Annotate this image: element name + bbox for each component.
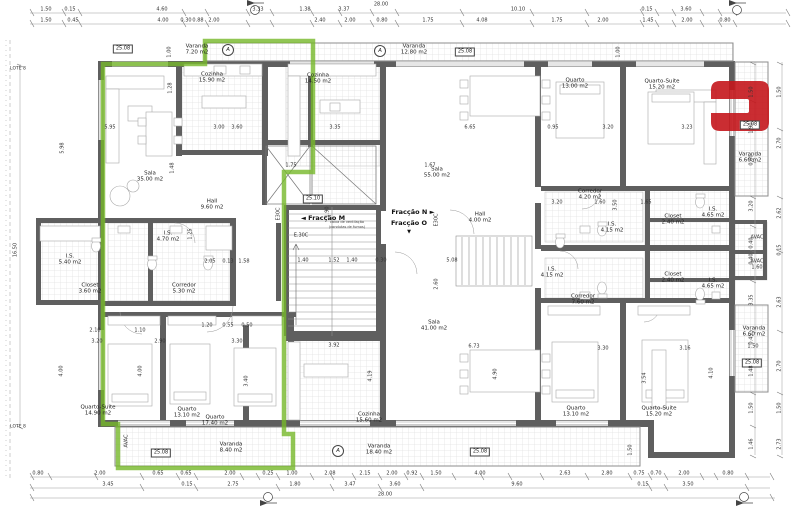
room-label: Quarto-Suite15.20 m2 <box>644 79 679 92</box>
lote-label: LOTE 8 <box>10 425 26 430</box>
dim-label: 0.15 <box>64 8 75 13</box>
dim-label: 1.80 <box>289 483 300 488</box>
dim-label: 3.23 <box>681 126 692 131</box>
room-label: Quarto-Suite15.20 m2 <box>641 406 676 419</box>
room-label: Sala35.00 m2 <box>137 171 163 184</box>
dim-label: 4.00 <box>157 19 168 24</box>
dim-label: 1.50 <box>778 86 783 97</box>
dim-label: 0.30 <box>180 19 191 24</box>
vent-note: (condutas de fumos) <box>329 225 365 229</box>
dim-label: 2.08 <box>324 472 335 477</box>
dim-label: 0.15 <box>181 483 192 488</box>
floor-plan-drawing <box>0 0 801 506</box>
dim-label: 1.50 <box>430 472 441 477</box>
dim-label: 2.40 <box>314 19 325 24</box>
dim-label: 0.95 <box>547 126 558 131</box>
avac-value: 1.60 <box>751 266 762 271</box>
dim-label: 1.58 <box>238 260 249 265</box>
room-label: Cozinha15.90 m2 <box>199 72 225 85</box>
dim-label: 3.40 <box>245 375 250 386</box>
dim-label: 2.63 <box>778 296 783 307</box>
dim-label: 2.73 <box>778 438 783 449</box>
room-label: Varanda7.20 m2 <box>186 44 209 57</box>
dim-label: 0.80 <box>722 472 733 477</box>
section-letter-a: A <box>222 44 234 56</box>
dim-label: 4.00 <box>474 472 485 477</box>
dim-label: 1.40 <box>297 259 308 264</box>
dim-label: 1.67 <box>424 164 435 169</box>
dim-label: 0.65 <box>152 472 163 477</box>
floor-plan: Varanda7.20 m2 Cozinha15.90 m2 Sala35.00… <box>0 0 801 506</box>
dim-label: 16.50 <box>14 243 19 257</box>
dim-label: 4.00 <box>139 365 144 376</box>
room-label: Quarto13.10 m2 <box>174 407 200 420</box>
shaft-label-e30c: E30C <box>435 213 440 226</box>
dim-label: 4.08 <box>476 19 487 24</box>
dim-total: 28.00 <box>374 3 388 8</box>
dim-label: 0.80 <box>32 472 43 477</box>
dim-label: 3.20 <box>602 126 613 131</box>
dim-label: 1.65 <box>640 201 651 206</box>
dim-label: 2.00 <box>386 472 397 477</box>
dim-label: 3.45 <box>102 483 113 488</box>
dim-label: 3.60 <box>231 126 242 131</box>
dim-label: 0.15 <box>778 244 783 255</box>
dim-label: 0.65 <box>180 472 191 477</box>
dim-label: 1.50 <box>750 86 755 97</box>
dim-label: 4.10 <box>710 367 715 378</box>
dim-label: 3.20 <box>91 340 102 345</box>
dim-label: 0.45 <box>750 333 755 344</box>
dim-label: 1.48 <box>750 365 755 376</box>
dim-label: 6.65 <box>464 126 475 131</box>
dim-label: 9.60 <box>511 483 522 488</box>
room-label: I.S.5.40 m2 <box>59 254 82 267</box>
dim-label: 2.00 <box>94 472 105 477</box>
dim-label: 2.10 <box>89 329 100 334</box>
dim-label: 5.95 <box>104 126 115 131</box>
dim-label: 2.00 <box>597 19 608 24</box>
dim-label: 1.50 <box>747 345 758 350</box>
room-label: Closet2.40 m2 <box>662 214 685 227</box>
fraction-label-o: Fracção O <box>391 219 427 227</box>
dim-label: 0.60 <box>750 154 755 165</box>
dim-label: 3.92 <box>328 344 339 349</box>
dim-label: 0.40 <box>750 237 755 248</box>
dim-label: 6.73 <box>468 345 479 350</box>
sill-height-box: 25.08 <box>113 45 133 54</box>
dim-label: 2.63 <box>559 472 570 477</box>
dim-label: 0.40 <box>750 253 755 264</box>
level-box: 25.10 <box>303 195 323 204</box>
room-label: Quarto13.00 m2 <box>562 78 588 91</box>
room-label: Varanda18.40 m2 <box>366 444 392 457</box>
dim-label: 1.20 <box>201 324 212 329</box>
room-label: Varanda8.40 m2 <box>220 442 243 455</box>
dim-label: 0.70 <box>650 472 661 477</box>
dim-label: 3.54 <box>643 372 648 383</box>
dim-label: 0.30 <box>375 259 386 264</box>
dim-label: 0.92 <box>406 472 417 477</box>
room-label: I.S.4.15 m2 <box>601 222 624 235</box>
dim-label: 1.10 <box>134 329 145 334</box>
room-label: Cozinha14.50 m2 <box>305 73 331 86</box>
dim-label: 3.35 <box>329 126 340 131</box>
room-label: Varanda12.80 m2 <box>401 44 427 57</box>
dim-label: 1.50 <box>40 8 51 13</box>
sill-height-box: 25.08 <box>151 449 171 458</box>
avac-label: AVAC <box>125 434 130 447</box>
dim-label: 0.88 <box>192 19 203 24</box>
dim-label: 1.75 <box>285 164 296 169</box>
dim-label: 0.55 <box>222 324 233 329</box>
dim-label: 3.37 <box>338 8 349 13</box>
dim-label: 1.90 <box>750 122 755 133</box>
dim-label: 3.60 <box>389 483 400 488</box>
dim-label: 1.52 <box>328 259 339 264</box>
dim-label: 0.80 <box>719 19 730 24</box>
dim-label: 1.28 <box>169 82 174 93</box>
room-label: Quarto-Suite14.90 m2 <box>80 405 115 418</box>
dim-label: 2.90 <box>154 340 165 345</box>
dim-label: 5.08 <box>446 259 457 264</box>
sill-height-box: 25.08 <box>455 48 475 57</box>
dim-label: 1.00 <box>168 46 173 57</box>
room-label: Quarto13.10 m2 <box>563 406 589 419</box>
dim-label: 3.50 <box>614 199 619 210</box>
dim-label: 2.75 <box>227 483 238 488</box>
dim-label: 1.00 <box>617 46 622 57</box>
dim-label: 2.00 <box>681 19 692 24</box>
dim-label: 0.13 <box>222 260 233 265</box>
room-label: I.S.4.65 m2 <box>702 278 725 291</box>
fraction-o-arrow-icon: ▼ <box>407 229 411 235</box>
room-label: Quarto17.40 m2 <box>202 415 228 428</box>
dim-label: 0.15 <box>641 8 652 13</box>
dim-label: 3.50 <box>682 483 693 488</box>
dim-label: 2.05 <box>204 260 215 265</box>
dim-label: 0.50 <box>241 324 252 329</box>
dim-label: 3.30 <box>231 340 242 345</box>
room-label: I.S.4.15 m2 <box>541 267 564 280</box>
dim-label: 1.50 <box>40 19 51 24</box>
section-letter-a: A <box>332 445 344 457</box>
dim-label: 0.45 <box>67 19 78 24</box>
dim-label: 2.00 <box>678 472 689 477</box>
dim-label: 1.50 <box>750 402 755 413</box>
dim-label: 4.90 <box>494 368 499 379</box>
dim-label: 1.48 <box>171 162 176 173</box>
dim-label: 5.98 <box>61 142 66 153</box>
dim-label: 0.25 <box>262 472 273 477</box>
vent-note: caixa de ventilação <box>330 220 364 224</box>
room-label: Corredor5.30 m2 <box>172 283 196 296</box>
dim-label: 2.00 <box>344 19 355 24</box>
sill-height-box: 25.08 <box>470 448 490 457</box>
dim-label: 1.46 <box>750 438 755 449</box>
dim-label: 2.00 <box>224 472 235 477</box>
dim-label: 1.45 <box>642 19 653 24</box>
dim-label: 0.80 <box>376 19 387 24</box>
room-label: Cozinha15.60 m2 <box>356 412 382 425</box>
dim-label: 3.00 <box>213 126 224 131</box>
shaft-label-e30c: E.30C <box>294 234 309 239</box>
dim-label: 3.47 <box>344 483 355 488</box>
dim-label: 10.10 <box>511 8 525 13</box>
dim-label: 3.30 <box>597 347 608 352</box>
dim-label: 3.33 <box>252 8 263 13</box>
dim-label: 1.00 <box>286 472 297 477</box>
room-label: Hall9.60 m2 <box>201 199 224 212</box>
section-letter-a: A <box>374 45 386 57</box>
dim-label: 1.40 <box>346 259 357 264</box>
lote-label: LOTE 8 <box>10 67 26 72</box>
room-label: I.S.4.70 m2 <box>157 231 180 244</box>
dim-label: 1.50 <box>778 402 783 413</box>
room-label: Sala55.00 m2 <box>424 167 450 180</box>
dim-label: 2.00 <box>208 19 219 24</box>
dim-label: 0.15 <box>637 483 648 488</box>
dim-label: 2.15 <box>359 472 370 477</box>
dim-label: 1.90 <box>326 206 331 217</box>
dim-label: 4.60 <box>156 8 167 13</box>
dim-label: 1.60 <box>594 201 605 206</box>
dim-label: 2.70 <box>778 137 783 148</box>
dim-total: 28.00 <box>378 493 392 498</box>
dim-label: 3.16 <box>679 347 690 352</box>
room-label: Corredor7.60 m2 <box>571 294 595 307</box>
dim-label: 4.00 <box>60 365 65 376</box>
room-label: Hall4.00 m2 <box>469 212 492 225</box>
dim-label: 3.20 <box>750 200 755 211</box>
dim-label: 1.25 <box>189 228 194 239</box>
dim-label: 1.75 <box>551 19 562 24</box>
dim-label: 3.20 <box>551 201 562 206</box>
dim-label: 2.60 <box>435 278 440 289</box>
dim-label: 2.62 <box>778 207 783 218</box>
shaft-label-e30c: E30C <box>277 207 282 220</box>
dim-label: 3.60 <box>680 8 691 13</box>
dim-label: 3.35 <box>750 294 755 305</box>
dim-label: 4.19 <box>369 370 374 381</box>
room-label: Closet2.40 m2 <box>662 272 685 285</box>
dim-label: 1.38 <box>299 8 310 13</box>
dim-label: 1.75 <box>422 19 433 24</box>
dim-label: 2.80 <box>601 472 612 477</box>
room-label: I.S.4.65 m2 <box>702 207 725 220</box>
dim-label: 2.70 <box>778 360 783 371</box>
dim-label: 0.75 <box>633 472 644 477</box>
room-label: Closet3.60 m2 <box>79 283 102 296</box>
dim-label: 1.50 <box>629 444 634 455</box>
fraction-label-n: Fracção N ► <box>391 208 434 216</box>
room-label: Sala41.00 m2 <box>421 320 447 333</box>
